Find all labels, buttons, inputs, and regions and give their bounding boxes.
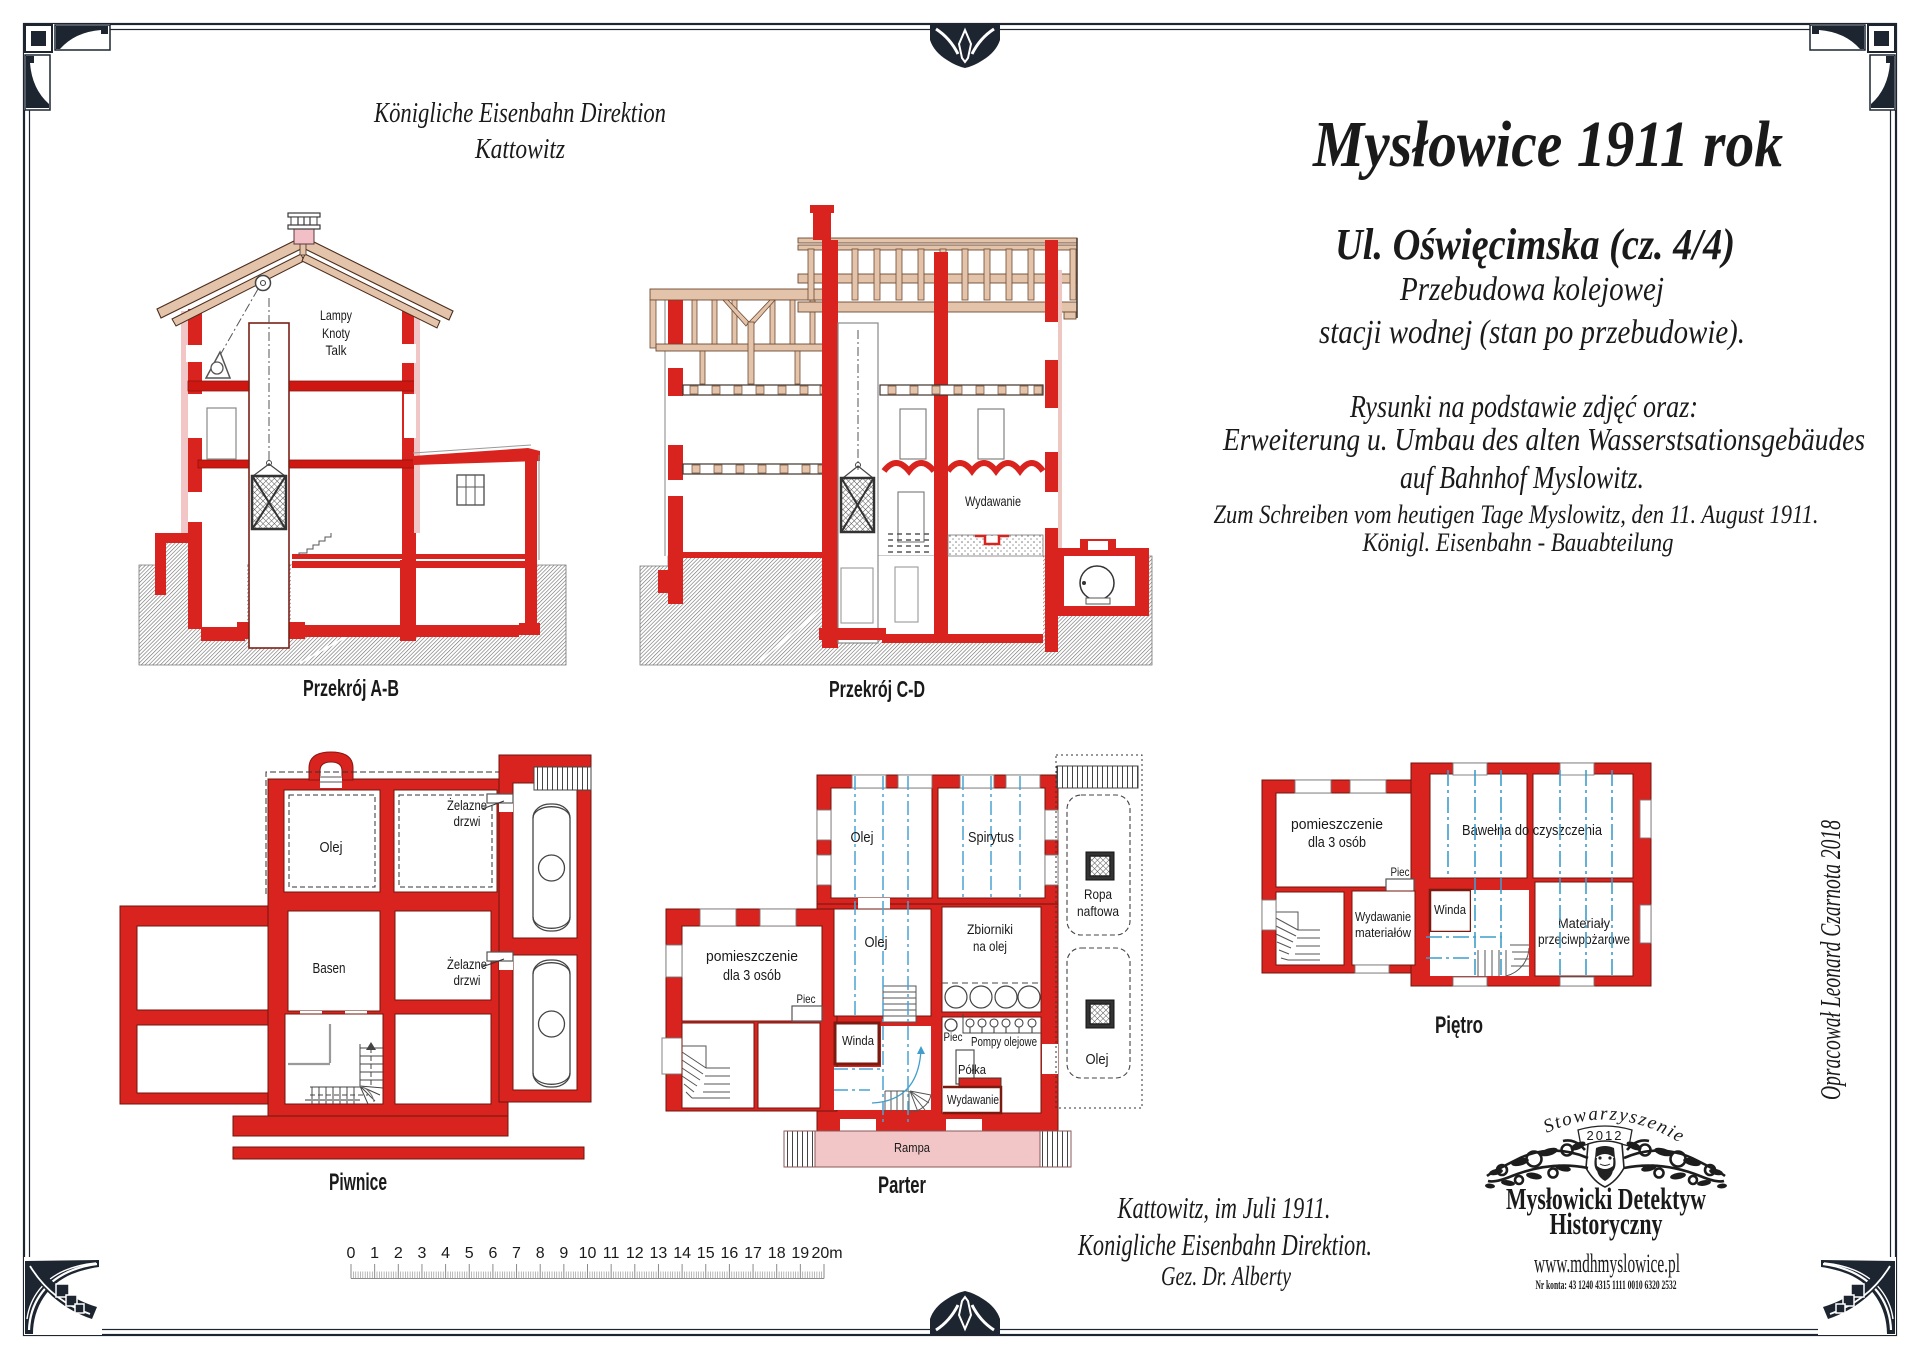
svg-text:Mysłowice 1911 rok: Mysłowice 1911 rok [1312,108,1783,181]
svg-text:Olej: Olej [865,934,888,951]
svg-text:stacji wodnej (stan po przebud: stacji wodnej (stan po przebudowie). [1319,314,1745,351]
svg-text:Przekrój A-B: Przekrój A-B [303,675,399,701]
svg-text:Zum Schreiben vom heutigen Tag: Zum Schreiben vom heutigen Tage Myslowit… [1214,500,1819,529]
svg-text:Piec: Piec [797,992,816,1006]
svg-text:przeciwpożarowe: przeciwpożarowe [1538,932,1630,947]
svg-text:Bawełna do czyszczenia: Bawełna do czyszczenia [1462,822,1603,839]
svg-text:12: 12 [626,1245,644,1262]
svg-text:Kattowitz, im Juli 1911.: Kattowitz, im Juli 1911. [1117,1190,1331,1225]
svg-text:naftowa: naftowa [1077,903,1119,919]
svg-text:Zbiorniki: Zbiorniki [967,921,1013,937]
svg-text:17: 17 [744,1245,762,1262]
svg-text:19: 19 [791,1245,809,1262]
svg-text:Rampa: Rampa [894,1140,931,1155]
svg-text:Kattowitz: Kattowitz [474,133,565,165]
svg-text:18: 18 [768,1245,786,1262]
svg-text:drzwi: drzwi [454,814,481,829]
svg-text:Wydawanie: Wydawanie [1355,909,1411,924]
svg-text:Przebudowa kolejowej: Przebudowa kolejowej [1399,271,1664,308]
svg-text:Wydawanie: Wydawanie [965,493,1021,509]
svg-text:Historyczny: Historyczny [1550,1206,1663,1241]
svg-text:pomieszczenie: pomieszczenie [706,949,798,965]
svg-text:9: 9 [559,1245,568,1262]
svg-text:Königl. Eisenbahn - Bauabteilu: Königl. Eisenbahn - Bauabteilung [1362,528,1674,557]
svg-text:dla 3 osób: dla 3 osób [723,968,781,984]
svg-text:20m: 20m [811,1245,842,1262]
svg-text:Pompy olejowe: Pompy olejowe [971,1034,1037,1049]
svg-text:dla 3 osób: dla 3 osób [1308,835,1366,851]
svg-text:Olej: Olej [1086,1051,1109,1068]
svg-text:Erweiterung u. Umbau des alten: Erweiterung u. Umbau des alten Wassersts… [1222,421,1865,457]
svg-text:3: 3 [417,1245,426,1262]
svg-text:Półka: Półka [958,1062,987,1077]
svg-text:materiałów: materiałów [1355,925,1412,940]
svg-text:Gez. Dr. Alberty: Gez. Dr. Alberty [1161,1261,1291,1291]
svg-text:Rysunki na podstawie zdjęć ora: Rysunki na podstawie zdjęć oraz: [1349,388,1698,424]
svg-text:7: 7 [512,1245,521,1262]
svg-text:Basen: Basen [313,960,346,977]
svg-text:Spirytus: Spirytus [968,829,1014,846]
svg-text:Olej: Olej [320,839,343,856]
svg-text:Lampy: Lampy [320,307,352,323]
svg-text:1: 1 [370,1245,379,1262]
svg-text:Ul. Oświęcimska (cz. 4/4): Ul. Oświęcimska (cz. 4/4) [1335,220,1735,269]
svg-text:Opracował Leonard Czarnota 201: Opracował Leonard Czarnota 2018 [1816,820,1847,1100]
svg-text:Nr konta: 43 1240 4315 1111 00: Nr konta: 43 1240 4315 1111 0010 6320 25… [1536,1277,1677,1292]
svg-text:Olej: Olej [851,829,874,846]
svg-text:Parter: Parter [878,1172,926,1199]
svg-text:Königliche Eisenbahn Direktion: Königliche Eisenbahn Direktion [373,97,666,129]
svg-text:Wydawanie: Wydawanie [947,1092,999,1107]
svg-text:Talk: Talk [326,342,348,358]
svg-text:Knoty: Knoty [322,325,350,341]
svg-text:na olej: na olej [973,938,1007,954]
svg-text:Winda: Winda [1434,902,1467,917]
svg-text:Piec: Piec [1391,865,1410,879]
svg-text:15: 15 [697,1245,715,1262]
svg-text:5: 5 [465,1245,474,1262]
svg-text:pomieszczenie: pomieszczenie [1291,817,1383,833]
svg-text:6: 6 [488,1245,497,1262]
svg-text:drzwi: drzwi [454,973,481,988]
svg-text:Ropa: Ropa [1084,886,1112,902]
svg-text:16: 16 [721,1245,739,1262]
svg-text:Żelazne: Żelazne [447,957,487,972]
svg-text:13: 13 [650,1245,668,1262]
svg-text:Żelazne: Żelazne [447,798,487,813]
svg-text:0: 0 [347,1245,356,1262]
svg-text:2: 2 [394,1245,403,1262]
svg-text:www.mdhmyslowice.pl: www.mdhmyslowice.pl [1534,1249,1680,1278]
svg-text:Piec: Piec [944,1030,963,1044]
svg-text:11: 11 [603,1245,620,1262]
svg-text:14: 14 [673,1245,691,1262]
svg-text:auf Bahnhof Myslowitz.: auf Bahnhof Myslowitz. [1400,459,1644,495]
svg-text:4: 4 [441,1245,450,1262]
svg-text:8: 8 [536,1245,545,1262]
svg-text:Przekrój C-D: Przekrój C-D [829,676,925,702]
svg-text:10: 10 [579,1245,597,1262]
svg-text:Konigliche Eisenbahn Direktion: Konigliche Eisenbahn Direktion. [1077,1227,1372,1262]
svg-text:Materiały: Materiały [1558,916,1610,931]
svg-text:Piętro: Piętro [1435,1012,1483,1039]
svg-text:Winda: Winda [842,1033,875,1048]
svg-text:Piwnice: Piwnice [329,1169,387,1196]
